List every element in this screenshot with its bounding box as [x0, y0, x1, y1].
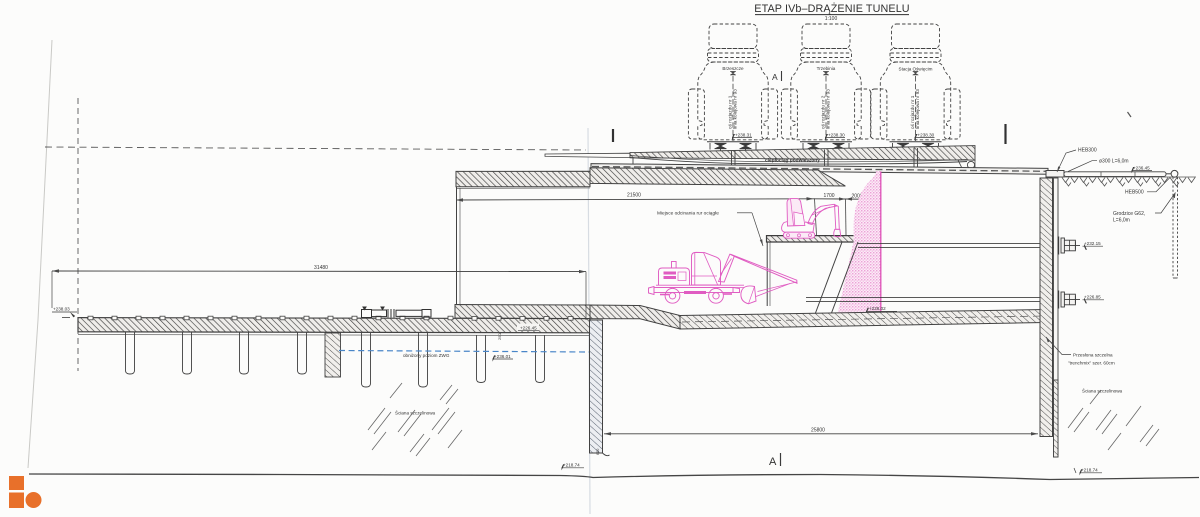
- svg-text:linia kolejowa nr 93: linia kolejowa nr 93: [826, 89, 831, 129]
- svg-text:Grodzice G62,: Grodzice G62,: [1113, 211, 1145, 217]
- svg-text:600: 600: [596, 449, 600, 455]
- svg-text:+226.85: +226.85: [1084, 295, 1101, 300]
- svg-text:L=6,0m: L=6,0m: [1113, 218, 1130, 224]
- svg-text:ciepłociąg podwieszony: ciepłociąg podwieszony: [765, 158, 820, 164]
- svg-text:A: A: [769, 456, 777, 468]
- svg-text:+236.01: +236.01: [494, 354, 511, 359]
- svg-text:21500: 21500: [627, 192, 641, 198]
- svg-text:+238.30: +238.30: [918, 132, 935, 137]
- svg-text:Ściana szczelinowa: Ściana szczelinowa: [1082, 387, 1123, 394]
- svg-text:1:100: 1:100: [825, 16, 838, 22]
- svg-text:+238.03: +238.03: [53, 307, 70, 312]
- svg-text:+238.31: +238.31: [735, 132, 752, 137]
- svg-text:ø300 L=6,0m: ø300 L=6,0m: [1099, 159, 1129, 165]
- svg-text:+226.45: +226.45: [520, 326, 537, 331]
- svg-text:+226.02: +226.02: [869, 306, 886, 311]
- svg-text:25800: 25800: [811, 428, 825, 434]
- svg-text:1700: 1700: [823, 193, 834, 199]
- svg-text:linia kolejowa nr 93: linia kolejowa nr 93: [733, 89, 738, 129]
- svg-text:Brzeszcze: Brzeszcze: [722, 66, 744, 71]
- svg-text:HEB300: HEB300: [1078, 148, 1097, 154]
- svg-text:+218.74: +218.74: [563, 463, 580, 468]
- svg-text:obniżony poziom ZWG: obniżony poziom ZWG: [403, 353, 450, 358]
- svg-text:+218.74: +218.74: [1081, 468, 1098, 473]
- svg-text:+238.30: +238.30: [828, 132, 845, 137]
- svg-text:linia kolejowa nr 93: linia kolejowa nr 93: [915, 89, 920, 129]
- svg-text:HEB500: HEB500: [1125, 190, 1144, 196]
- svg-text:ETAP IVb–DRĄŻENIE TUNELU: ETAP IVb–DRĄŻENIE TUNELU: [754, 2, 909, 15]
- svg-text:Przesłona szczelna: Przesłona szczelna: [1073, 353, 1113, 358]
- svg-text:"trenchmix" szer. 60cm: "trenchmix" szer. 60cm: [1068, 361, 1115, 366]
- svg-text:Stacja Oświęcim: Stacja Oświęcim: [899, 67, 933, 72]
- svg-text:Miejsce odcinania rur ociągłe: Miejsce odcinania rur ociągłe: [657, 211, 719, 217]
- svg-text:31480: 31480: [314, 265, 328, 271]
- svg-text:Ściana szczelinowa: Ściana szczelinowa: [395, 409, 436, 416]
- svg-text:A: A: [772, 72, 778, 82]
- svg-text:+236.45: +236.45: [1133, 166, 1150, 171]
- svg-text:Trzebinia: Trzebinia: [817, 66, 836, 71]
- svg-text:+232.15: +232.15: [1084, 241, 1101, 246]
